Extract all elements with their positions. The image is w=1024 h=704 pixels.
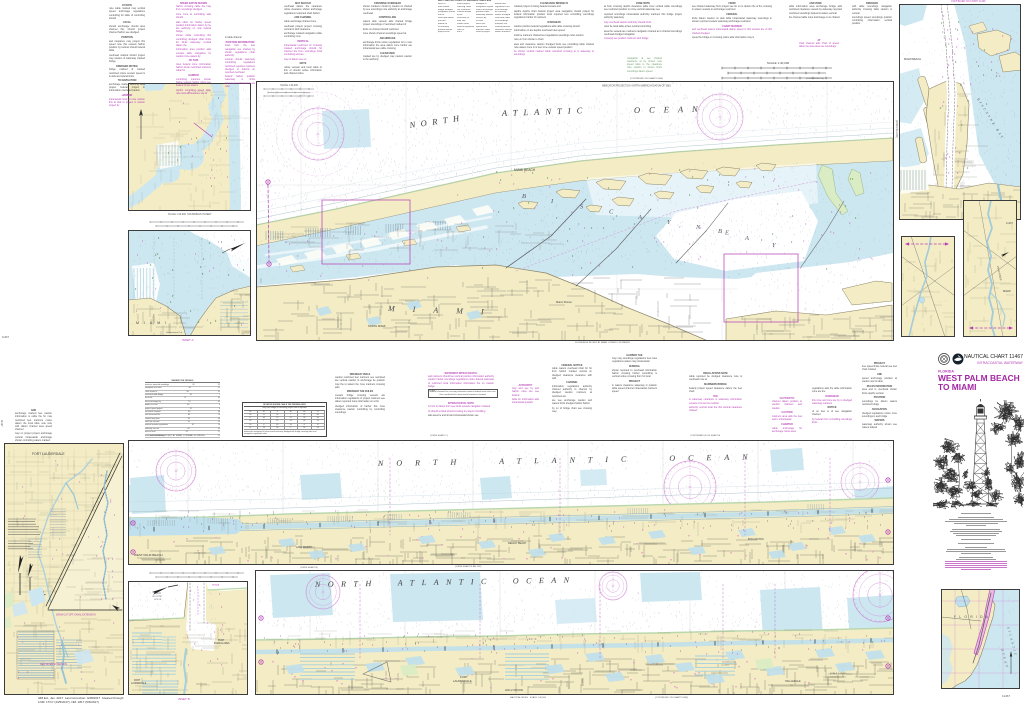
svg-text:E: E (724, 229, 729, 236)
svg-text:MIAMI BEACH: MIAMI BEACH (514, 168, 536, 172)
svg-text:Government Cut: Government Cut (166, 331, 182, 334)
svg-text:NORTH MIAMI: NORTH MIAMI (368, 324, 386, 328)
svg-text:BOCA RATON: BOCA RATON (748, 538, 764, 541)
svg-text:HALLANDALE: HALLANDALE (785, 680, 801, 683)
svg-text:NAUTICAL CHART 11467: NAUTICAL CHART 11467 (964, 354, 1023, 360)
svg-text:NORTH: NORTH (153, 593, 162, 595)
svg-text:LAUDERDALE: LAUDERDALE (131, 682, 147, 685)
svg-text:DANIA CUT-OFF CANAL EXTENSION: DANIA CUT-OFF CANAL EXTENSION (56, 614, 96, 617)
svg-text:LAKE WORTH: LAKE WORTH (296, 546, 312, 549)
svg-text:HOLLYWOOD: HOLLYWOOD (505, 688, 523, 692)
svg-text:SR A1A: SR A1A (212, 584, 220, 587)
svg-text:NEW RIVER EXTENSION: NEW RIVER EXTENSION (40, 664, 67, 666)
svg-text:LAUDERDALE: LAUDERDALE (453, 679, 472, 683)
svg-text:B: B (718, 228, 722, 235)
svg-text:WEST PALM BEACH: WEST PALM BEACH (134, 553, 163, 557)
svg-text:DELRAY BEACH: DELRAY BEACH (508, 542, 527, 545)
svg-text:OCEAN: OCEAN (634, 104, 707, 115)
svg-text:INTRACOASTAL WATERWAY: INTRACOASTAL WATERWAY (977, 361, 1023, 365)
svg-text:FORT: FORT (134, 680, 141, 682)
svg-text:SCALE 1:40,000: SCALE 1:40,000 (830, 672, 847, 675)
svg-text:SCALE 1:40,000: SCALE 1:40,000 (280, 84, 298, 87)
svg-text:MIAMI: MIAMI (136, 321, 171, 325)
svg-text:MERCATOR PROJECTION NORTH AME: MERCATOR PROJECTION NORTH AMERICAN DATUM… (602, 85, 671, 88)
svg-text:ATLANTIC: ATLANTIC (151, 595, 162, 598)
svg-text:C: C (609, 209, 614, 216)
svg-text:MIAMI: MIAMI (1003, 289, 1011, 293)
svg-text:FORT LAUDERDALE: FORT LAUDERDALE (32, 452, 65, 456)
svg-text:A: A (744, 235, 749, 242)
svg-text:OCEAN: OCEAN (154, 598, 162, 601)
svg-text:SCALE 1:40,000: SCALE 1:40,000 (767, 61, 790, 65)
svg-text:Miami Shores: Miami Shores (556, 300, 573, 304)
svg-text:PORT: PORT (218, 640, 225, 642)
svg-text:FLORIDA: FLORIDA (954, 615, 991, 619)
svg-text:MIAMI BEACH: MIAMI BEACH (904, 57, 921, 61)
svg-text:B: B (522, 193, 526, 200)
svg-text:EVERGLADES: EVERGLADES (214, 642, 230, 645)
